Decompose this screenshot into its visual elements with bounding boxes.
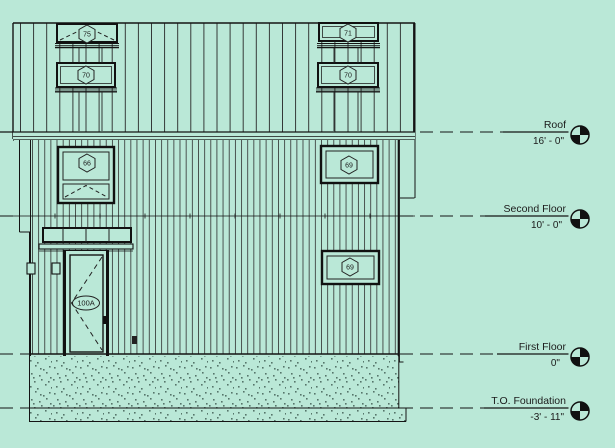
door-tag-label: 100A — [77, 299, 95, 308]
left-return-wall — [14, 140, 30, 232]
wall-sconce-right — [52, 263, 60, 274]
window-tag: 69 — [342, 258, 358, 276]
window-tag-label: 71 — [344, 31, 352, 38]
corner-board — [400, 140, 415, 198]
level-elevation: -3' - 11" — [530, 412, 564, 423]
wall-sconce-left — [27, 263, 35, 274]
window-tag: 70 — [78, 66, 94, 84]
foundation-stem-wall — [30, 356, 399, 408]
elevation-drawing: 75 70 71 — [0, 0, 615, 448]
level-elevation: 16' - 0" — [533, 136, 564, 147]
door-tag: 100A — [73, 296, 100, 310]
level-elevation: 0" — [551, 358, 561, 369]
window-tag: 71 — [340, 24, 356, 42]
window-second-floor-left: 66 — [58, 147, 114, 203]
window-tag: 75 — [79, 25, 95, 43]
wall-fixture — [132, 336, 137, 344]
window-tag-label: 70 — [82, 73, 90, 80]
foundation-footing — [30, 408, 406, 422]
window-tag-label: 69 — [346, 265, 354, 272]
window-tag: 69 — [341, 156, 357, 174]
level-elevation: 10' - 0" — [531, 220, 562, 231]
level-name: Second Floor — [504, 203, 567, 215]
window-upper-right-top: 71 — [317, 23, 380, 48]
entry-canopy — [39, 228, 133, 251]
level-head-symbol — [571, 126, 589, 144]
door-handle — [103, 316, 108, 324]
roof-eave-band — [0, 132, 415, 140]
window-second-floor-right: 69 — [321, 146, 378, 183]
level-head-symbol — [571, 210, 589, 228]
window-tag-label: 70 — [344, 73, 352, 80]
foundation — [30, 354, 406, 422]
level-head-symbol — [571, 348, 589, 366]
entry-door: 100A — [63, 250, 109, 358]
level-head-symbol — [571, 402, 589, 420]
window-tag: 70 — [340, 66, 356, 84]
level-name: Roof — [544, 119, 566, 131]
window-tag: 66 — [79, 154, 95, 172]
window-upper-left-top: 75 — [55, 24, 119, 48]
window-tag-label: 75 — [83, 32, 91, 39]
window-tag-label: 69 — [345, 163, 353, 170]
window-tag-label: 66 — [83, 161, 91, 168]
level-name: T.O. Foundation — [491, 395, 566, 407]
window-first-floor-right: 69 — [322, 251, 379, 284]
elevation-drawing-canvas: 75 70 71 — [0, 0, 615, 448]
level-name: First Floor — [519, 341, 567, 353]
